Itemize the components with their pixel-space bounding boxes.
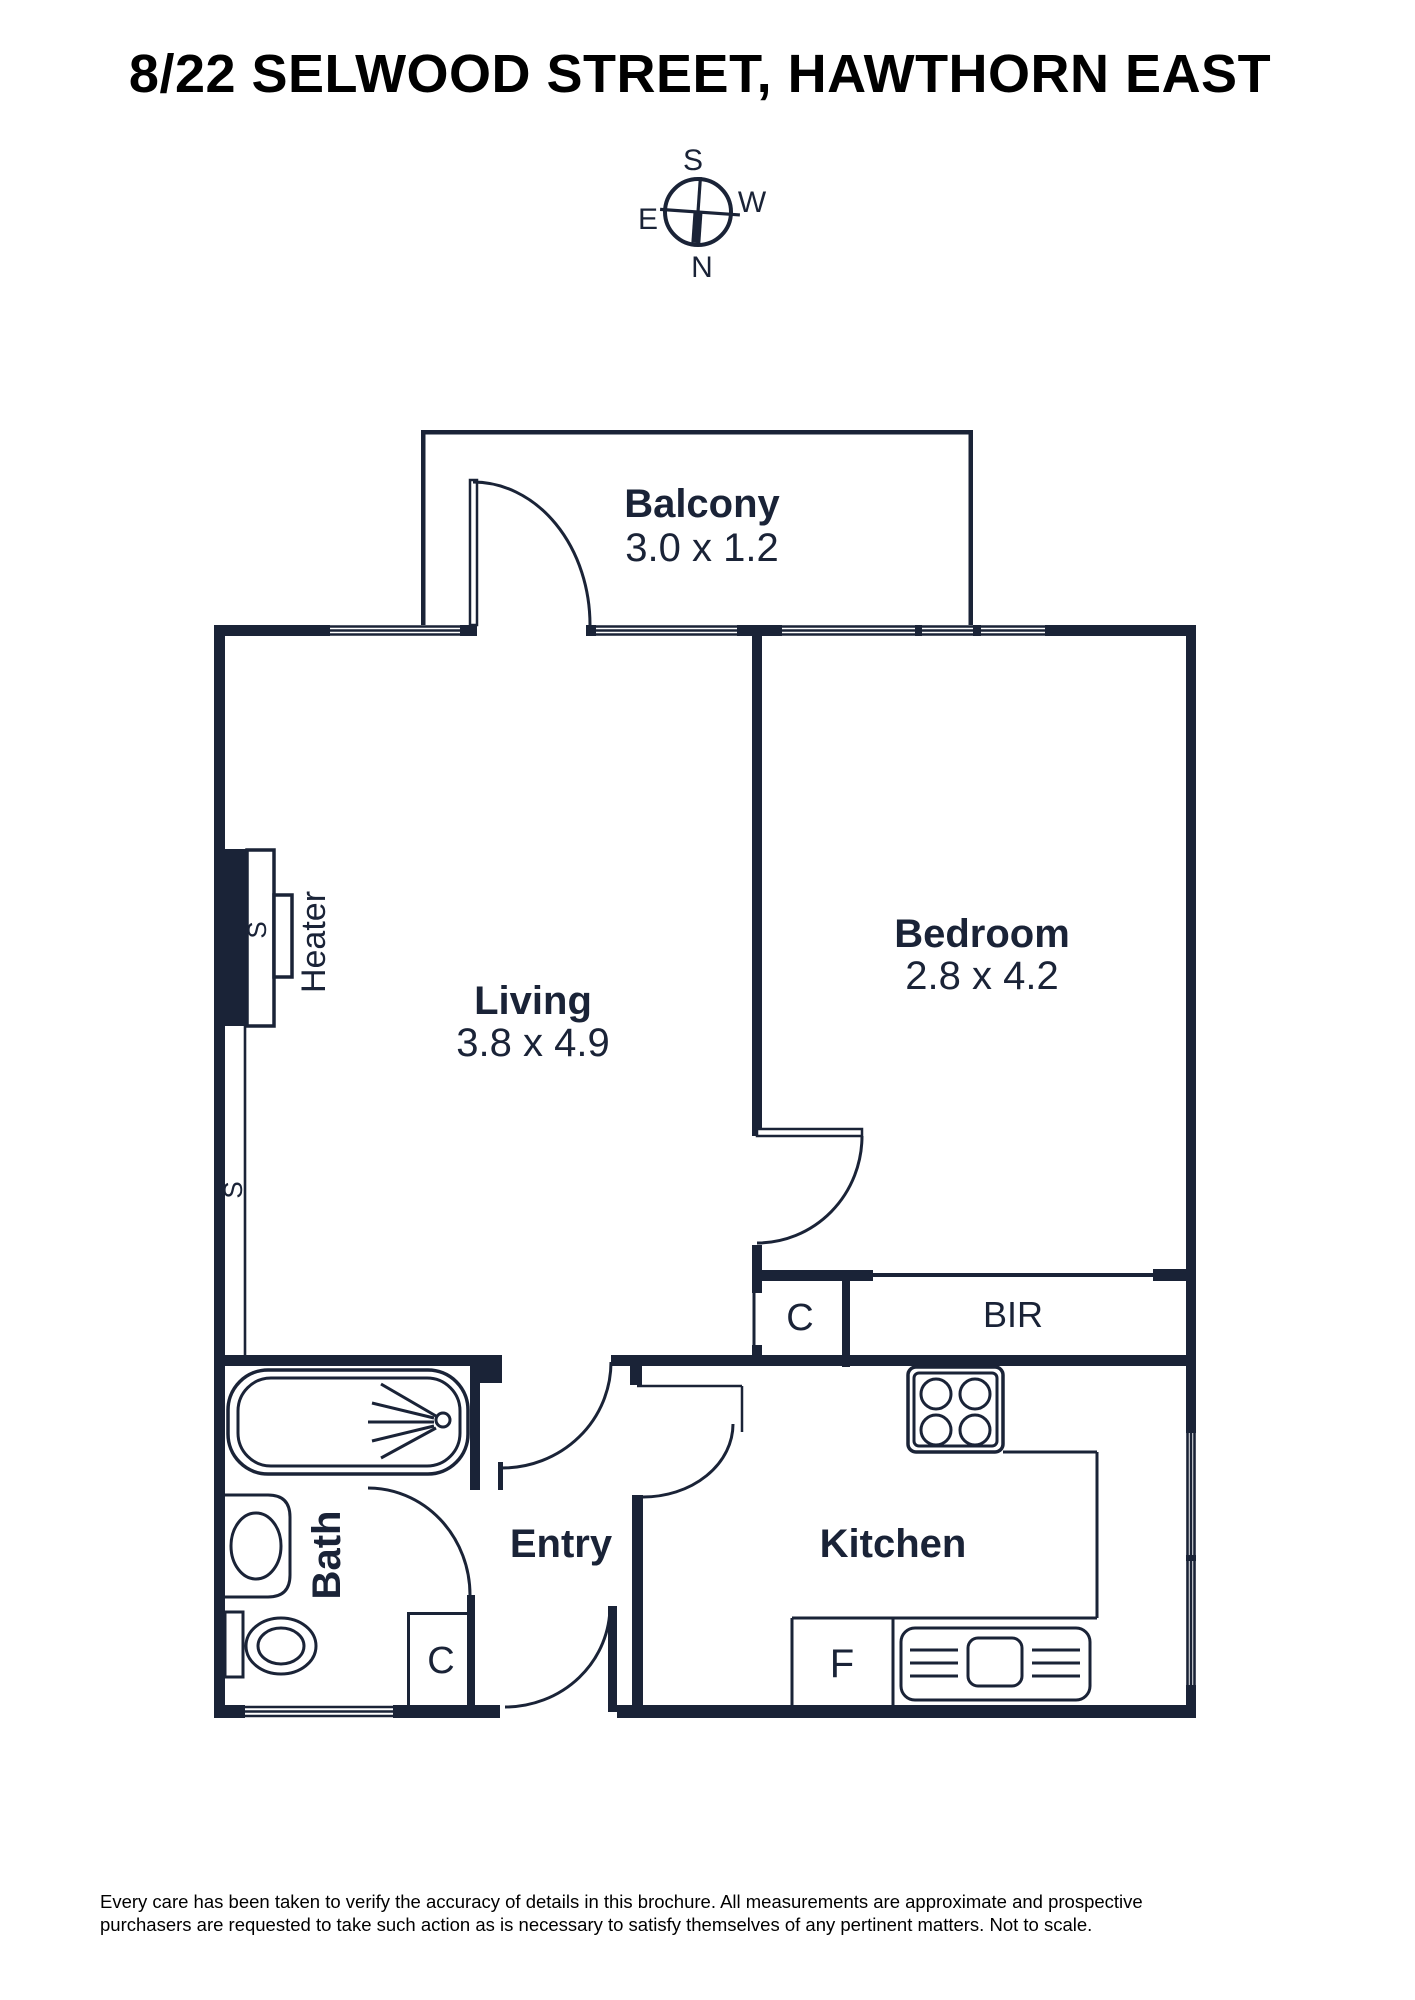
label-heater: Heater — [295, 891, 333, 993]
room-dims-bedroom: 2.8 x 4.2 — [905, 954, 1058, 998]
label-fridge: F — [830, 1642, 854, 1686]
room-label-bath: Bath — [305, 1511, 349, 1600]
window-bath-south — [245, 1705, 393, 1718]
label-closet-entry: C — [427, 1640, 454, 1682]
disclaimer-line-2: purchasers are requested to take such ac… — [100, 1914, 1092, 1935]
floor-plan: 8/22 SELWOOD STREET, HAWTHORN EAST S W E… — [0, 0, 1415, 2000]
compass-north: N — [691, 251, 713, 284]
room-label-balcony: Balcony — [624, 482, 780, 526]
entry-kitchen-divider — [632, 1495, 643, 1707]
stove-cooktop — [908, 1367, 1003, 1452]
window-top-3 — [782, 625, 915, 636]
window-kitchen-east-1 — [1188, 1433, 1195, 1555]
room-dims-living: 3.8 x 4.9 — [456, 1021, 609, 1065]
room-dims-balcony: 3.0 x 1.2 — [625, 526, 778, 570]
window-top-4 — [922, 625, 973, 636]
disclaimer-line-1: Every care has been taken to verify the … — [100, 1891, 1143, 1912]
window-kitchen-east-2 — [1188, 1561, 1195, 1685]
vanity-basin — [225, 1495, 290, 1597]
floor-plan-page: 8/22 SELWOOD STREET, HAWTHORN EAST S W E… — [0, 0, 1415, 2000]
kitchen-door — [637, 1386, 742, 1497]
label-bir: BIR — [983, 1294, 1043, 1335]
room-label-entry: Entry — [510, 1522, 613, 1566]
compass-west: W — [738, 186, 767, 219]
toilet — [225, 1612, 316, 1677]
compass-rose: S W E N — [638, 144, 767, 284]
balcony-door — [470, 480, 590, 625]
room-label-bedroom: Bedroom — [894, 912, 1070, 956]
entry-living-door — [502, 1362, 611, 1468]
window-top-5 — [981, 625, 1045, 636]
bedroom-door — [757, 1129, 862, 1243]
label-switch-lower: S — [218, 1181, 248, 1198]
living-bedroom-divider — [752, 636, 762, 1365]
window-top-2 — [596, 625, 737, 636]
label-switch-upper: S — [242, 921, 272, 938]
label-closet-hall: C — [786, 1297, 813, 1339]
compass-east: E — [638, 203, 658, 236]
bathtub — [228, 1370, 468, 1474]
compass-south: S — [683, 144, 703, 177]
room-label-living: Living — [474, 979, 592, 1023]
outer-walls — [214, 625, 1196, 1718]
kitchen-sink — [901, 1628, 1090, 1700]
page-title: 8/22 SELWOOD STREET, HAWTHORN EAST — [129, 44, 1271, 104]
front-door — [505, 1606, 617, 1712]
room-label-kitchen: Kitchen — [820, 1522, 967, 1566]
window-top-1 — [330, 625, 460, 636]
bath-door — [368, 1488, 470, 1595]
